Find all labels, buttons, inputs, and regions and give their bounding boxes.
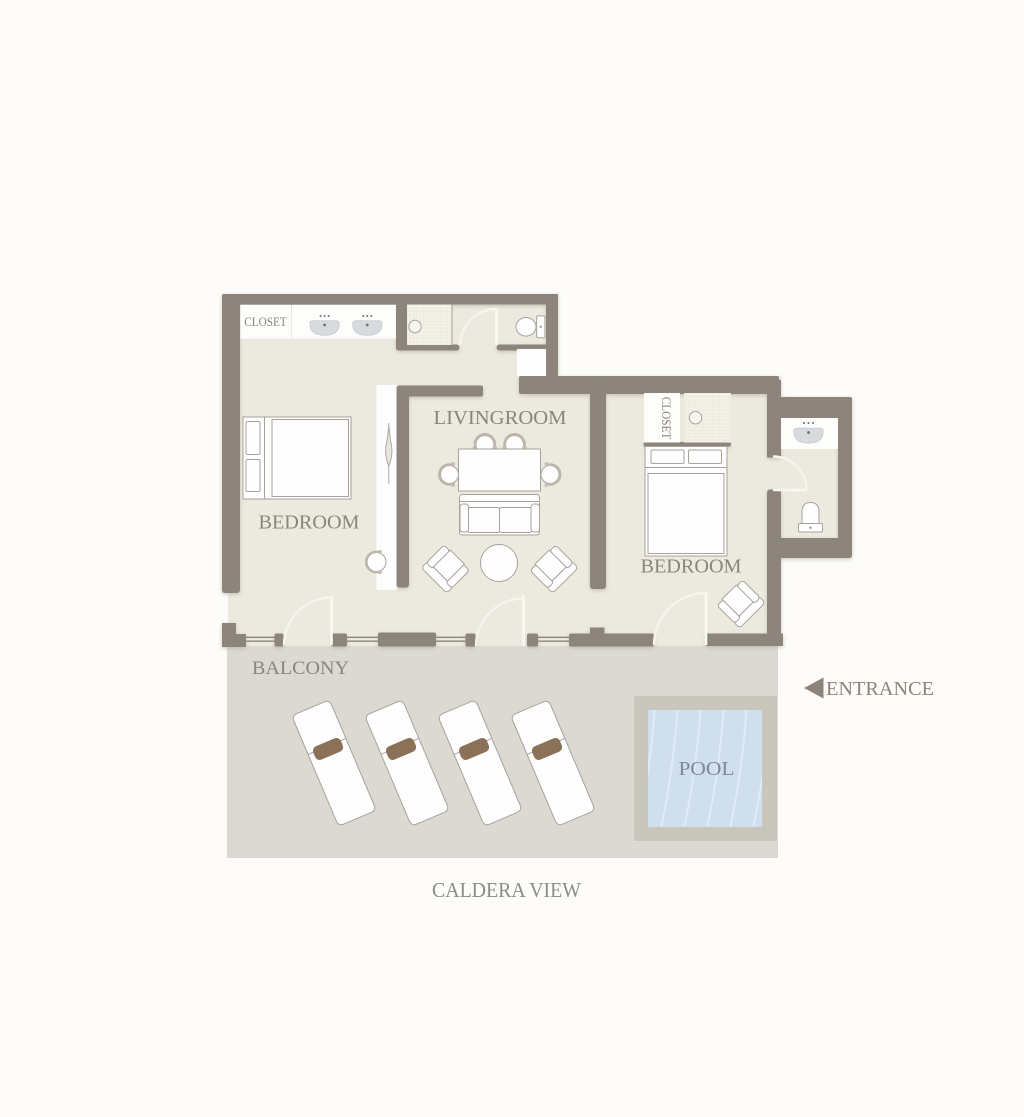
svg-text:BEDROOM: BEDROOM [641,556,742,578]
svg-text:POOL: POOL [679,759,735,780]
svg-text:LIVINGROOM: LIVINGROOM [434,407,567,429]
svg-text:CLOSET: CLOSET [659,397,673,440]
svg-text:ENTRANCE: ENTRANCE [826,678,934,700]
svg-text:CLOSET: CLOSET [244,315,287,329]
svg-text:BALCONY: BALCONY [252,659,349,679]
svg-text:BEDROOM: BEDROOM [259,512,360,534]
svg-text:CALDERA VIEW: CALDERA VIEW [432,878,581,902]
